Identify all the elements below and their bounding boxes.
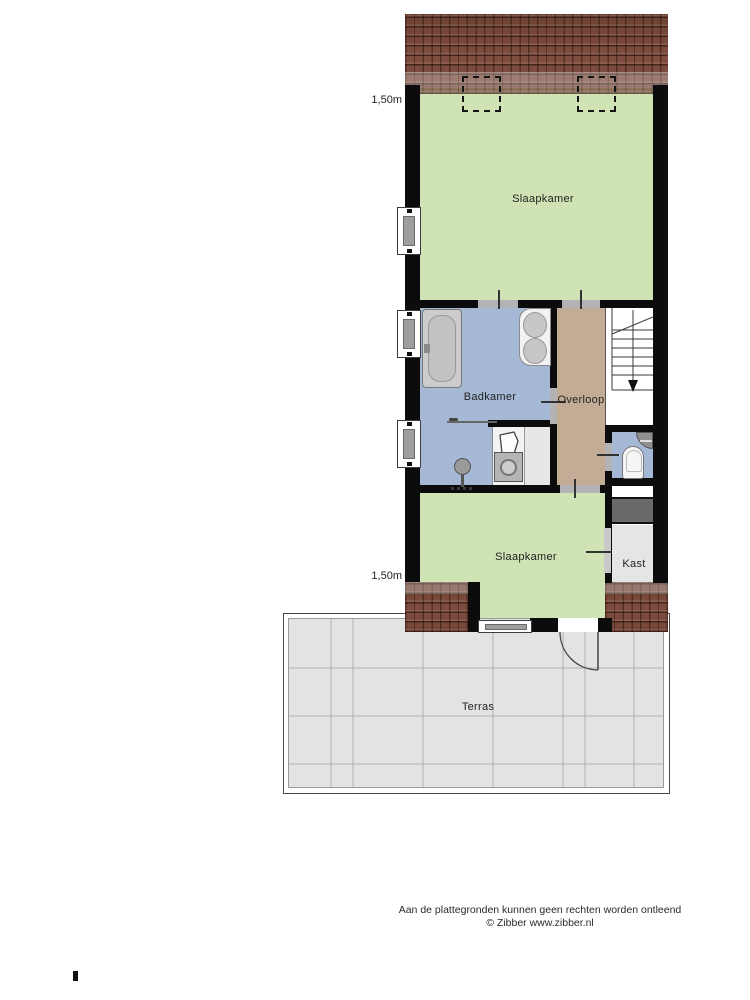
wall — [550, 308, 557, 388]
wall — [405, 356, 420, 420]
copyright-line: © Zibber www.zibber.nl — [340, 917, 740, 930]
dormer-window-icon — [577, 76, 616, 112]
door-mark — [586, 551, 612, 553]
room-slaapkamer-bottom-lower — [480, 582, 605, 618]
page-mark — [73, 971, 78, 981]
wall — [488, 420, 550, 427]
room-kast — [612, 525, 653, 583]
window — [478, 620, 532, 633]
bathtub-icon — [422, 309, 462, 388]
door-swing-icon — [556, 626, 604, 676]
disclaimer-line1: Aan de plattegronden kunnen geen rechten… — [340, 904, 740, 917]
door-mark — [498, 290, 500, 309]
double-sink-icon — [519, 308, 551, 366]
stairs-icon — [606, 308, 653, 425]
wall — [420, 485, 560, 493]
door-mark — [580, 290, 582, 309]
disclaimer: Aan de plattegronden kunnen geen rechten… — [340, 904, 740, 930]
dimension-label-top: 1,50m — [340, 94, 402, 106]
shower-screen-icon — [447, 421, 497, 423]
roof-top — [405, 14, 668, 94]
wall — [405, 253, 420, 310]
toilet-lobby — [612, 486, 653, 497]
wall — [605, 425, 612, 443]
room-overloop — [557, 308, 605, 485]
room-slaapkamer-top — [420, 88, 653, 300]
technical-void — [612, 497, 653, 524]
door-mark — [541, 401, 566, 403]
window — [397, 420, 421, 468]
terrace-floor — [288, 618, 664, 788]
door-opening — [550, 388, 557, 424]
wall — [420, 300, 653, 308]
floor-plan-page: Slaapkamer Badkamer Overloop Slaapkamer … — [0, 0, 750, 1000]
roof-bottom-right — [605, 582, 668, 632]
door-opening — [560, 485, 600, 493]
washing-machine-icon — [494, 452, 523, 482]
wall — [405, 85, 420, 207]
wall — [605, 478, 668, 486]
shower-head-icon — [454, 458, 471, 475]
wall — [530, 618, 558, 632]
window — [397, 310, 421, 358]
wall — [468, 618, 478, 632]
terrace-tile-grid — [289, 619, 663, 787]
window — [397, 207, 421, 255]
roof-bottom-left — [405, 582, 468, 632]
laundry-closet-right — [524, 427, 550, 485]
dormer-window-icon — [462, 76, 501, 112]
wall — [612, 425, 653, 432]
door-mark — [574, 479, 576, 498]
wall — [550, 424, 557, 485]
wall — [653, 85, 668, 583]
shower-base-icon — [451, 487, 474, 490]
toilet-icon — [622, 446, 644, 479]
shower-stand-icon — [461, 474, 464, 487]
room-slaapkamer-bottom — [420, 493, 605, 582]
door-opening — [605, 443, 612, 471]
stairwell — [605, 308, 653, 425]
dimension-label-bottom: 1,50m — [340, 570, 402, 582]
shower-handle-icon — [449, 418, 458, 421]
wall — [405, 466, 420, 582]
door-mark — [597, 454, 619, 456]
